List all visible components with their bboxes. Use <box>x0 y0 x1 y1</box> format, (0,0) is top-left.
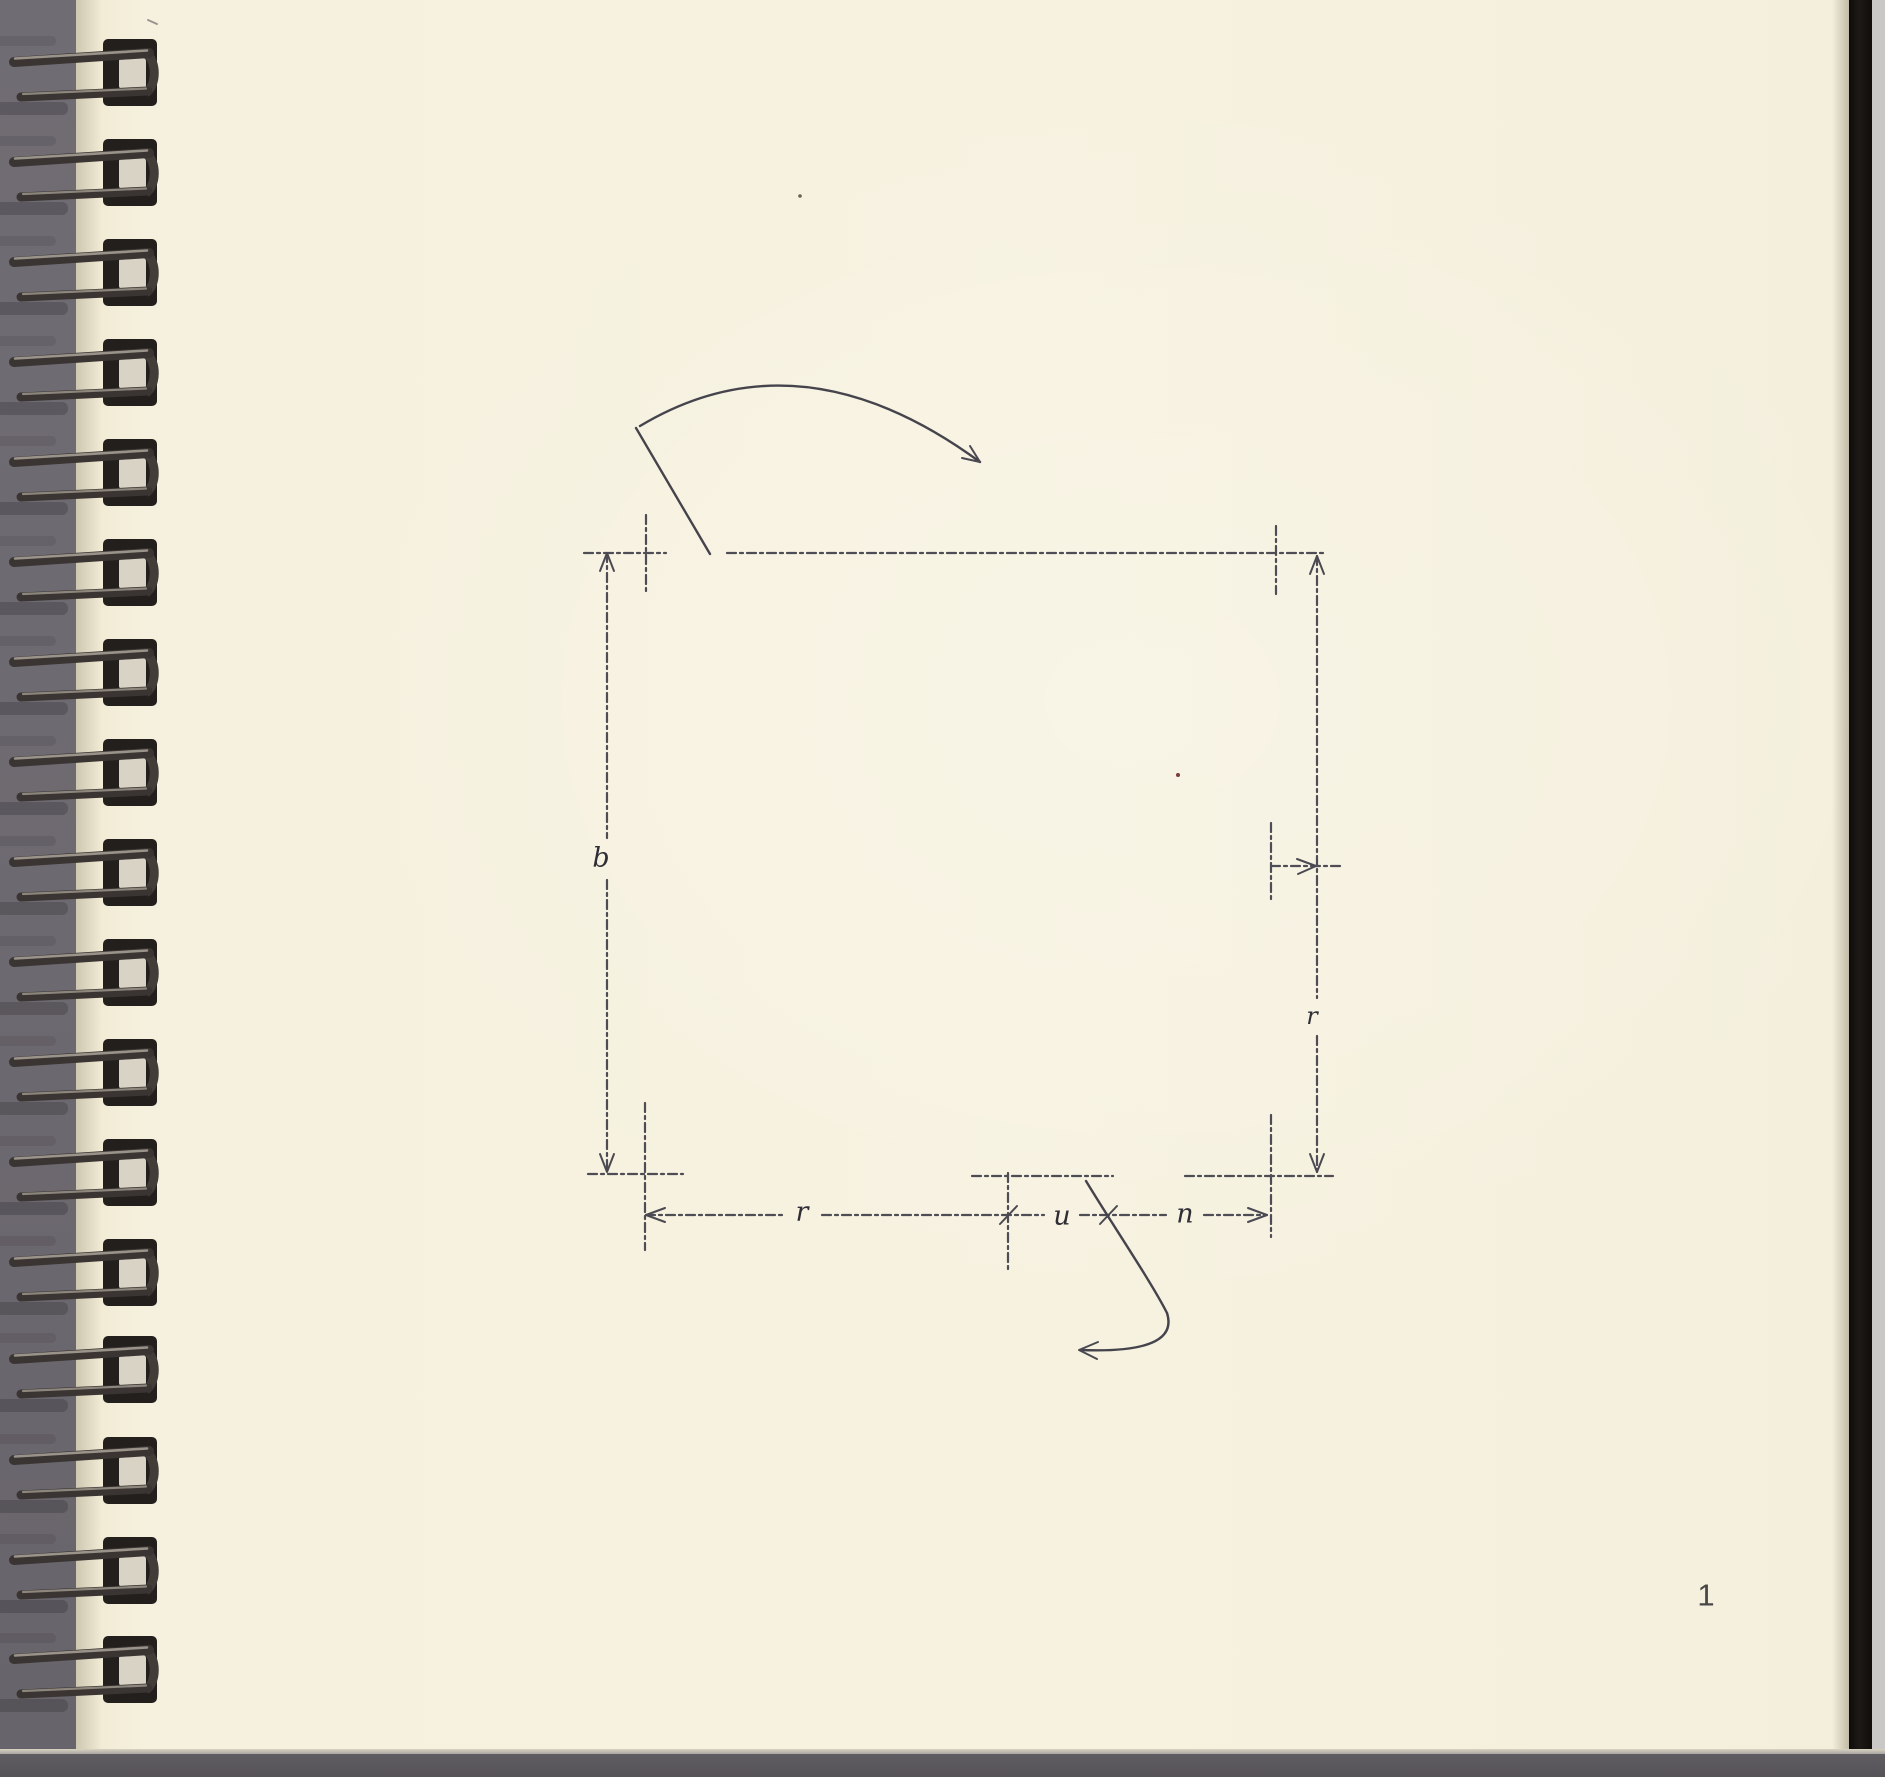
spiral-ring <box>0 236 157 315</box>
plan-diagram <box>148 20 1340 1359</box>
spiral-ring <box>0 1236 157 1315</box>
dimension-label-b: b <box>592 845 609 872</box>
spiral-ring <box>0 1333 157 1412</box>
bottom-door-leaf-line <box>1086 1181 1167 1313</box>
top-door-swing-arc <box>640 386 980 462</box>
spiral-ring <box>0 1036 157 1115</box>
paper-speck-top <box>798 194 802 198</box>
spiral-ring <box>0 1136 157 1215</box>
spiral-ring <box>0 536 157 615</box>
spiral-ring <box>0 836 157 915</box>
page-number: 1 <box>1697 1580 1714 1611</box>
dimension-label-u: u <box>1053 1203 1070 1230</box>
spiral-ring <box>0 336 157 415</box>
spiral-ring <box>0 1534 157 1613</box>
paper-speck-middle <box>1176 773 1180 777</box>
spiral-ring <box>0 936 157 1015</box>
spiral-ring <box>0 1434 157 1513</box>
spiral-ring <box>0 636 157 715</box>
dimension-label-n: n <box>1176 1201 1193 1228</box>
spiral-binding <box>0 36 157 1712</box>
dimension-label-right-r: r <box>1306 1004 1317 1028</box>
spiral-ring <box>0 436 157 515</box>
diagram-and-binding-graphics <box>0 0 1885 1777</box>
scanned-notebook-page: b r r u n 1 <box>0 0 1885 1777</box>
spiral-ring <box>0 1633 157 1712</box>
paper-mark-top-left <box>148 20 157 24</box>
spiral-ring <box>0 36 157 115</box>
dimension-label-bottom-r: r <box>796 1199 809 1226</box>
spiral-ring <box>0 736 157 815</box>
spiral-ring <box>0 136 157 215</box>
